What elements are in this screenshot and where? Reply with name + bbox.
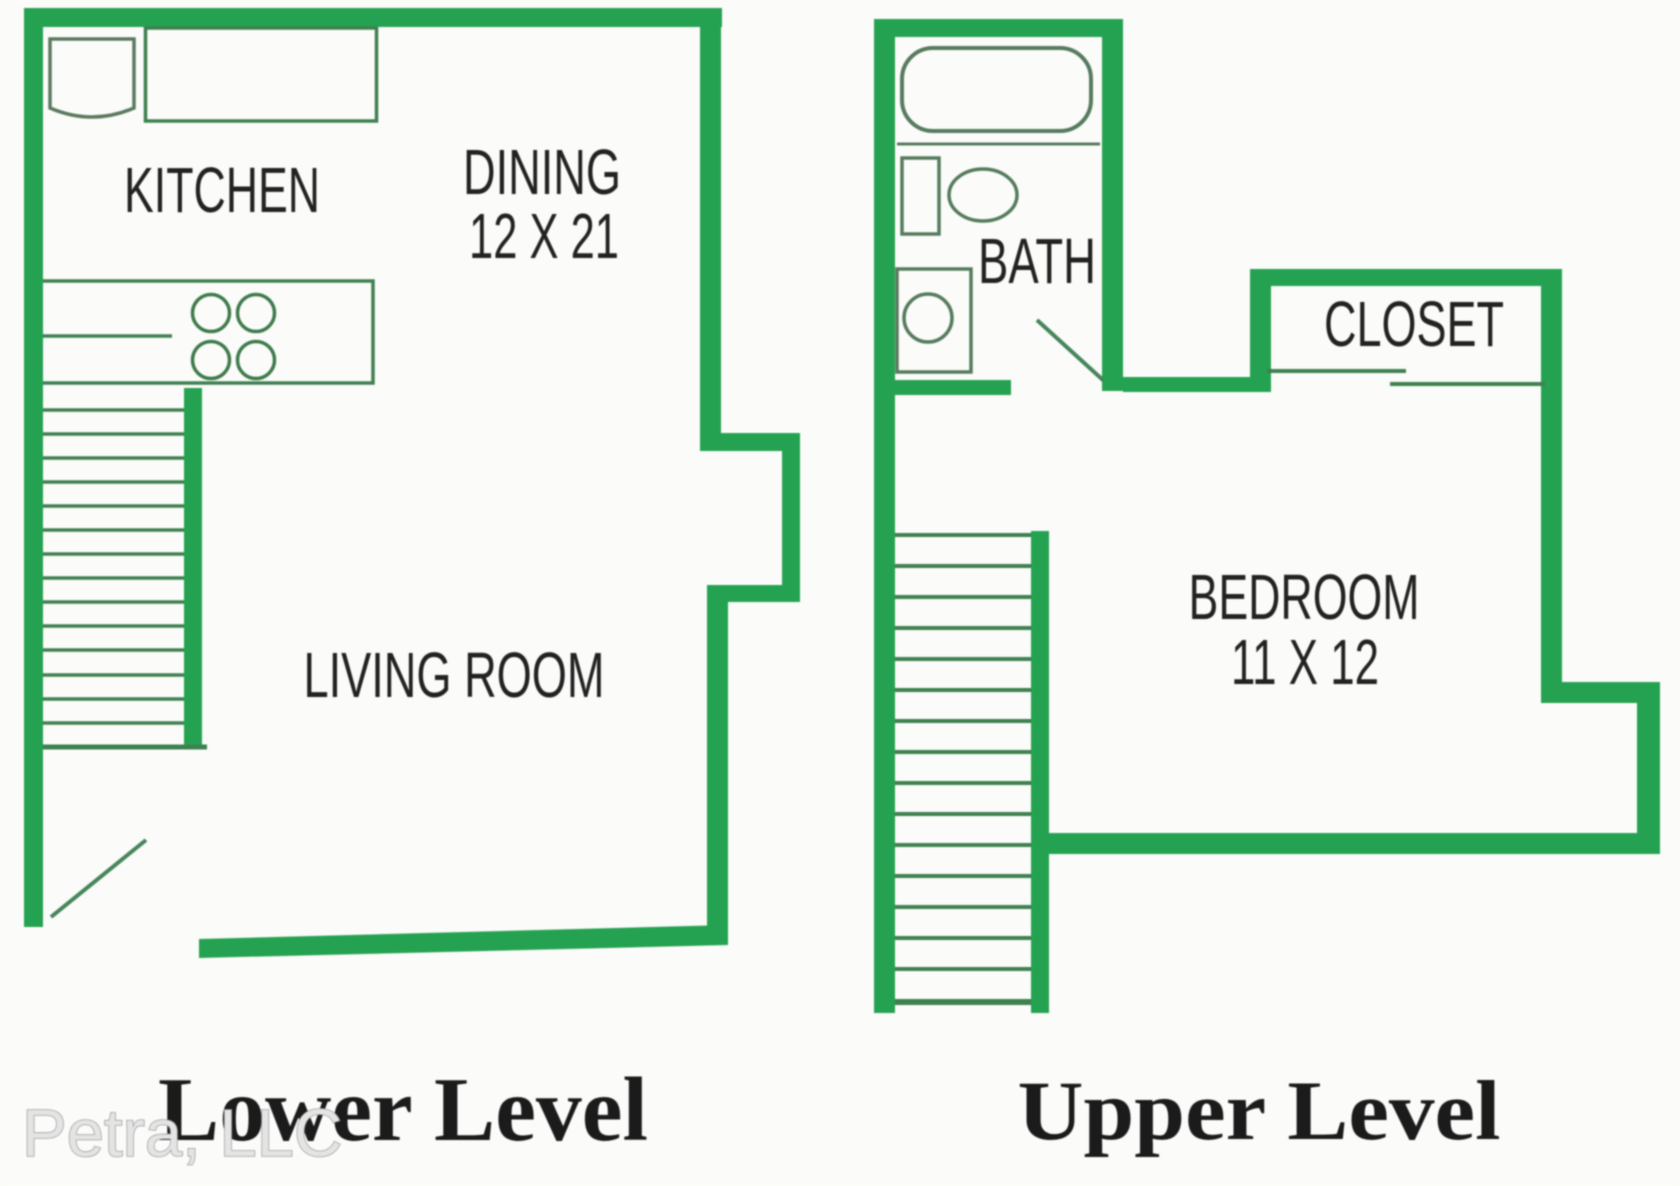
svg-text:DINING: DINING xyxy=(463,136,621,208)
svg-text:11 X 12: 11 X 12 xyxy=(1231,626,1379,698)
svg-text:BEDROOM: BEDROOM xyxy=(1189,561,1420,633)
svg-text:12 X 21: 12 X 21 xyxy=(469,200,619,272)
svg-text:CLOSET: CLOSET xyxy=(1324,288,1504,360)
svg-text:KITCHEN: KITCHEN xyxy=(124,154,320,226)
svg-text:BATH: BATH xyxy=(978,225,1096,297)
svg-text:LIVING ROOM: LIVING ROOM xyxy=(304,639,605,711)
svg-text:Upper Level: Upper Level xyxy=(1018,1064,1501,1158)
svg-text:Petra, LLC: Petra, LLC xyxy=(22,1096,342,1171)
